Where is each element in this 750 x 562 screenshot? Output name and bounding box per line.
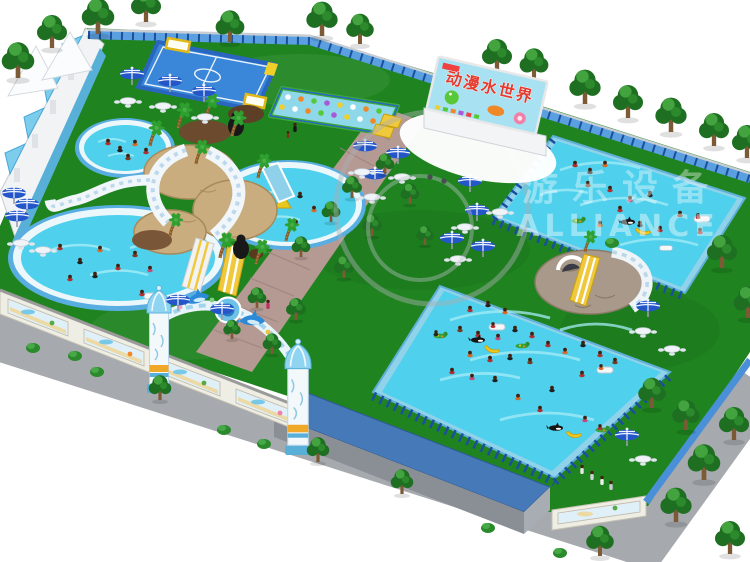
watermark-text-en: ALLIANCE — [516, 209, 719, 244]
raft-float — [660, 246, 673, 251]
goal-frame — [166, 38, 190, 52]
water-park-render: 游乐设备 ALLIANCE 动漫水世界 — [0, 0, 750, 562]
watermark-text-zh: 游乐设备 — [522, 168, 722, 209]
rock-cap — [132, 230, 172, 250]
arch-pillar — [285, 339, 311, 455]
park-scene: 游乐设备 ALLIANCE 动漫水世界 — [0, 0, 750, 562]
